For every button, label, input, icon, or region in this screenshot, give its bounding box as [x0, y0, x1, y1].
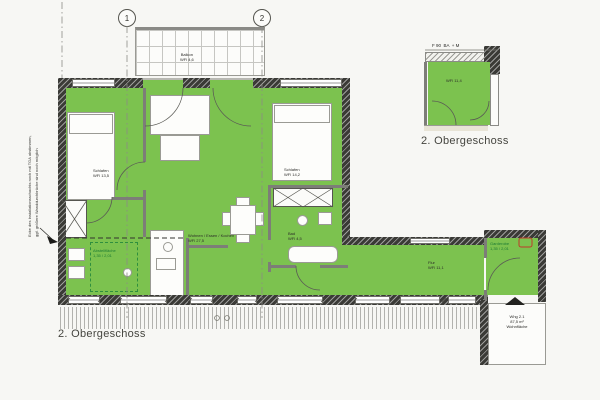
living-label: Wohnen / Essen / KochenWFl 27,5 [188, 233, 234, 243]
bath-area: WFl 4,5 [288, 236, 302, 241]
inset-header-label: F 90 BA + M [432, 43, 459, 49]
entry-note-2: 1,35 / 2,01 [490, 246, 509, 251]
wall-left [58, 78, 66, 305]
inset-room-label: WFl 11,4 [446, 78, 462, 83]
window-bottom-1 [68, 296, 100, 304]
railing-band [60, 307, 480, 329]
inset-caption: 2. Obergeschoss [421, 135, 509, 147]
entry-note-label: Garderobe1,35 / 2,01 [490, 241, 509, 251]
wall-entry-top [484, 230, 546, 238]
left-margin-note: Ecke des Installationsschachts noch mit … [27, 125, 41, 237]
kitchen-hob [163, 242, 173, 252]
balcony-door-opening-1 [143, 78, 183, 88]
stair-note-3: Wohnfläche [506, 324, 527, 329]
dining-table [230, 205, 256, 235]
corridor-label: FlurWFl 11,1 [428, 260, 444, 270]
stairwell-block [488, 303, 546, 365]
chair-bottom [236, 234, 250, 243]
balcony-door-opening-2 [210, 78, 253, 88]
leader-arrow [40, 228, 58, 244]
bed-left-pillow [69, 114, 113, 134]
partition-bedroomleft-a [143, 88, 146, 162]
shaft-right [273, 188, 333, 207]
toilet [318, 212, 332, 225]
partition-bath-bottom-b [320, 265, 348, 268]
storage-note-2: 1,35 / 2,01 [93, 253, 112, 258]
stairwell-note: Whg 2.187,5 m²Wohnfläche [492, 314, 542, 330]
bedroom-left-area: WFl 13,5 [93, 173, 109, 178]
main-caption: 2. Obergeschoss [58, 328, 146, 340]
grid-marker-1: 1 [118, 9, 136, 27]
window-bottom-2 [120, 296, 167, 304]
inset-room-area: WFl 11,4 [446, 78, 462, 83]
corridor-floor-area [343, 245, 484, 295]
bath-sink [297, 215, 308, 226]
inset-caption-text: 2. Obergeschoss [421, 135, 509, 147]
balcony-deck [135, 27, 265, 76]
bath-label: BadWFl 4,5 [288, 231, 302, 241]
left-note-line1: Ecke des Installationsschachts noch mit … [27, 135, 32, 237]
storage-fixture [123, 268, 132, 277]
window-top-1 [72, 79, 115, 87]
partition-shaft-top [271, 185, 348, 188]
main-caption-text: 2. Obergeschoss [58, 328, 146, 340]
wall-entry-right [538, 230, 546, 302]
chair-top [236, 197, 250, 206]
left-note-line2: ggf. größere Wanddurchbrüche sind noch m… [34, 148, 39, 237]
corridor-area: WFl 11,1 [428, 265, 444, 270]
inset-header-text: F 90 BA + M [432, 43, 459, 48]
partition-shaftzone-top [112, 197, 143, 200]
wardrobe-large [150, 95, 210, 135]
living-area: WFl 27,5 [188, 238, 204, 243]
bedroom-right-area: WFl 14,2 [284, 172, 300, 177]
grid-marker-2-label: 2 [260, 14, 264, 23]
fixture-b [68, 266, 85, 279]
chair-right [255, 212, 264, 226]
partition-corridor-stub [188, 245, 228, 248]
bedroom-left-label: SchlafenWFl 13,5 [93, 168, 109, 178]
balcony-area: WFl 4,6 [180, 57, 194, 62]
balcony-label: BalkonWFl 4,6 [180, 52, 194, 62]
partition-bath-bottom-a [271, 265, 296, 268]
partition-bedroomleft-b [143, 190, 146, 237]
wardrobe-small [160, 135, 200, 161]
wall-stair-left [480, 300, 488, 365]
window-bottom-8 [448, 296, 476, 304]
inset-room-floor [428, 62, 490, 125]
window-wing-top [410, 238, 450, 244]
inset-door-jamb [490, 74, 499, 126]
wall-right-main [342, 78, 350, 245]
window-bottom-6 [355, 296, 390, 304]
window-bottom-7 [400, 296, 440, 304]
bed-right-pillow [274, 105, 330, 123]
partition-entry-b [484, 290, 487, 300]
partition-entry-a [484, 238, 487, 258]
kitchen-sink [156, 258, 176, 270]
window-bottom-4 [237, 296, 257, 304]
window-top-2 [280, 79, 342, 87]
fixture-a [68, 248, 85, 261]
inset-wall-left [424, 62, 427, 128]
inset-sill [424, 125, 488, 131]
grid-marker-1-label: 1 [125, 14, 129, 23]
bathtub [288, 246, 338, 263]
window-bottom-3 [190, 296, 213, 304]
partition-bath-left-a [268, 185, 271, 240]
window-bottom-5 [277, 296, 323, 304]
chair-left [222, 212, 231, 226]
grid-marker-2: 2 [253, 9, 271, 27]
bedroom-right-label: SchlafenWFl 14,2 [284, 167, 300, 177]
floor-plan-page: BalkonWFl 4,6 1 2 [0, 0, 600, 400]
storage-note-label: Abstellfläche1,35 / 2,01 [93, 248, 116, 258]
